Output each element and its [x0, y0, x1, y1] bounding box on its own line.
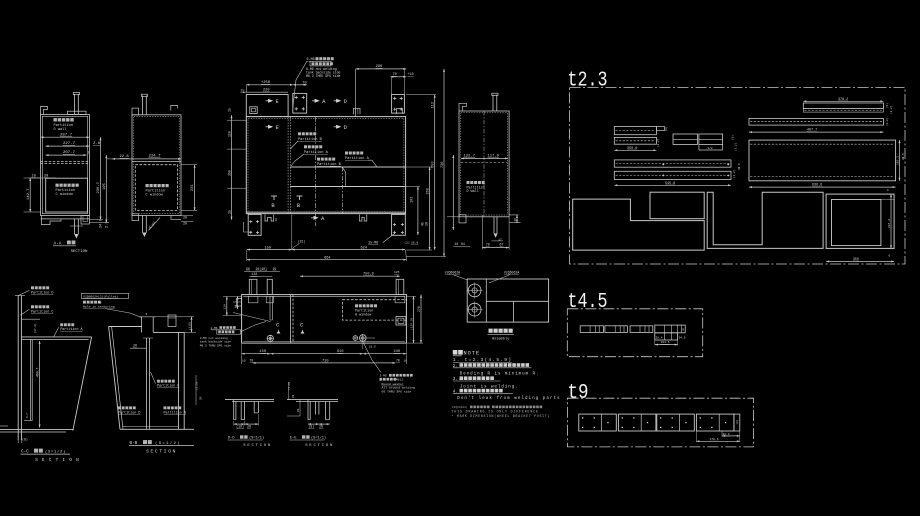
- svg-text:34.5: 34.5: [679, 336, 686, 339]
- svg-text:6-M6: 6-M6: [307, 58, 315, 62]
- svg-text:THIS DRAWING IS ONLY DIFFERENC: THIS DRAWING IS ONLY DIFFERENCE: [452, 410, 539, 414]
- svg-text:67: 67: [500, 243, 504, 247]
- svg-text:70: 70: [250, 358, 254, 362]
- svg-text:(6): (6): [664, 126, 668, 131]
- svg-text:185.5: 185.5: [896, 156, 899, 165]
- svg-text:(9): (9): [735, 419, 739, 424]
- svg-text:2-M6: 2-M6: [211, 327, 218, 330]
- svg-text:SECTION: SECTION: [35, 458, 83, 463]
- svg-text:(2): (2): [404, 241, 410, 245]
- svg-text:96: 96: [246, 267, 250, 271]
- svg-text:Bending R is minimum R.: Bending R is minimum R.: [460, 372, 540, 377]
- svg-text:84: 84: [461, 242, 465, 246]
- svg-text:70: 70: [486, 243, 490, 247]
- svg-text:122.7: 122.7: [464, 155, 475, 159]
- svg-text:29: 29: [273, 267, 277, 271]
- svg-text:Partition D: Partition D: [118, 410, 140, 415]
- svg-text:15: 15: [240, 90, 244, 94]
- svg-text:(3.2): (3.2): [656, 138, 660, 147]
- svg-text:Partition A: Partition A: [345, 156, 370, 161]
- svg-text:38.4: 38.4: [656, 336, 663, 339]
- svg-text:149.7: 149.7: [27, 189, 31, 200]
- svg-text:D wall: D wall: [54, 127, 67, 132]
- svg-text:1. t=2.3(4.5.9): 1. t=2.3(4.5.9): [453, 357, 512, 363]
- svg-text:M6.3 THRU SPG side: M6.3 THRU SPG side: [200, 343, 231, 347]
- svg-text:(110): (110): [187, 321, 191, 330]
- svg-text:1/2: 1/2: [708, 146, 713, 150]
- svg-text:15: 15: [227, 210, 231, 214]
- svg-text:360: 360: [227, 170, 231, 176]
- svg-text:20: 20: [319, 425, 323, 429]
- svg-text:231: 231: [191, 183, 195, 191]
- svg-text:650: 650: [432, 162, 436, 168]
- svg-text:664: 664: [324, 257, 330, 261]
- svg-text:6: 6: [146, 313, 148, 316]
- svg-text:230.7: 230.7: [97, 182, 101, 193]
- svg-text:Assembly: Assembly: [492, 337, 510, 342]
- svg-text:224.7: 224.7: [149, 154, 162, 158]
- svg-text:60 THRU SPG side: 60 THRU SPG side: [382, 389, 412, 393]
- svg-text:110: 110: [224, 304, 227, 310]
- svg-text:(2.3): (2.3): [195, 381, 199, 390]
- svg-text:(81): (81): [298, 239, 306, 243]
- svg-text:110: 110: [227, 131, 231, 137]
- svg-text:6.7: 6.7: [26, 413, 29, 418]
- svg-text:Partition B: Partition B: [298, 137, 323, 142]
- svg-text:Partition A: Partition A: [60, 327, 83, 332]
- svg-text:20: 20: [183, 222, 187, 226]
- svg-text:2.6: 2.6: [93, 142, 101, 146]
- svg-text:(197.9): (197.9): [409, 317, 413, 330]
- svg-text:270: 270: [417, 306, 421, 312]
- svg-text:A window: A window: [355, 312, 371, 317]
- svg-text:70: 70: [396, 358, 400, 362]
- svg-text:Partition A: Partition A: [164, 410, 187, 415]
- svg-text:(3.2): (3.2): [732, 169, 736, 178]
- svg-text:170.6: 170.6: [710, 438, 719, 441]
- svg-text:tank backside side: tank backside side: [200, 340, 231, 344]
- svg-text:(8): (8): [22, 438, 28, 442]
- svg-text:20(40): 20(40): [256, 267, 268, 271]
- svg-text:20: 20: [200, 396, 203, 400]
- svg-text:20: 20: [247, 425, 251, 429]
- svg-text:SECTION: SECTION: [243, 444, 272, 448]
- svg-text:Partition A: Partition A: [304, 150, 329, 155]
- svg-text:19: 19: [425, 222, 429, 226]
- svg-text:350: 350: [853, 257, 859, 261]
- svg-text:V2Q6062A: V2Q6062A: [504, 271, 519, 275]
- svg-text:(3.2): (3.2): [885, 117, 889, 126]
- svg-text:736: 736: [441, 162, 445, 168]
- svg-text:(8): (8): [309, 424, 315, 428]
- svg-text:D wall: D wall: [467, 189, 479, 194]
- svg-text:2: 2: [88, 151, 90, 155]
- svg-text:(10): (10): [236, 424, 244, 428]
- svg-text:C window: C window: [56, 192, 74, 197]
- svg-text:38.5: 38.5: [738, 163, 741, 170]
- svg-text:SECTION: SECTION: [146, 449, 177, 454]
- svg-text:M6.3 THRU SPG side: M6.3 THRU SPG side: [306, 74, 341, 78]
- svg-text:84: 84: [235, 304, 238, 308]
- svg-text:(2.3): (2.3): [287, 381, 291, 390]
- svg-text:194.5: 194.5: [661, 341, 670, 344]
- svg-text:* MARK DIMENSION(WHEEL BRACKET: * MARK DIMENSION(WHEEL BRACKET POSIT): [452, 414, 551, 418]
- svg-text:191: 191: [411, 197, 415, 203]
- svg-text:112: 112: [432, 102, 436, 108]
- svg-text:287.7: 287.7: [60, 133, 73, 137]
- svg-text:117.9: 117.9: [488, 155, 500, 159]
- svg-text:207.7: 207.7: [63, 151, 76, 155]
- svg-text:Partition D: Partition D: [31, 290, 53, 295]
- svg-text:R: R: [682, 329, 684, 332]
- svg-text:SECTION: SECTION: [71, 250, 88, 254]
- svg-text:460.7: 460.7: [35, 367, 39, 377]
- svg-text:2.3: 2.3: [106, 222, 110, 228]
- svg-text:38.5: 38.5: [902, 153, 905, 160]
- svg-text:20: 20: [297, 408, 300, 412]
- svg-text:15: 15: [227, 108, 231, 112]
- svg-text:21.5: 21.5: [369, 346, 376, 349]
- svg-text:24.7: 24.7: [100, 219, 104, 228]
- svg-text:SECTION: SECTION: [305, 444, 334, 448]
- svg-text:10: 10: [455, 242, 459, 246]
- svg-text:Hole in sensoring: Hole in sensoring: [83, 305, 115, 309]
- svg-text:V2Q6062A(2)(Fillet): V2Q6062A(2)(Fillet): [83, 294, 118, 298]
- svg-text:(6): (6): [731, 135, 735, 140]
- svg-text:20: 20: [292, 394, 295, 398]
- svg-text:150: 150: [265, 247, 271, 251]
- svg-text:): ): [488, 405, 490, 409]
- svg-text:Partition C: Partition C: [157, 384, 179, 389]
- svg-text:Don't leak from welding parts: Don't leak from welding parts: [457, 396, 560, 401]
- svg-text:260: 260: [426, 188, 430, 194]
- svg-text:3-M6 nut welding: 3-M6 nut welding: [200, 336, 228, 340]
- svg-text:C window: C window: [146, 192, 164, 197]
- svg-text:(47.3): (47.3): [33, 323, 37, 333]
- svg-text:227.7: 227.7: [63, 142, 76, 146]
- svg-text:t2.3: t2.3: [568, 70, 608, 93]
- svg-text:V2Q6062A: V2Q6062A: [445, 271, 460, 275]
- svg-text:(3.2): (3.2): [734, 143, 738, 151]
- svg-text:624: 624: [361, 247, 367, 251]
- svg-text:16.6: 16.6: [411, 242, 418, 245]
- svg-text:20: 20: [275, 218, 278, 222]
- svg-text:45: 45: [514, 218, 517, 222]
- svg-text:2-M6: 2-M6: [380, 375, 387, 378]
- svg-text:105: 105: [103, 182, 107, 190]
- svg-text:NOTE: NOTE: [464, 351, 480, 357]
- svg-text:t4.5: t4.5: [568, 291, 608, 314]
- svg-text:237.2: 237.2: [888, 219, 891, 228]
- svg-text:125: 125: [394, 271, 400, 274]
- svg-text:(3.2): (3.2): [889, 105, 893, 114]
- svg-text:+10: +10: [408, 73, 414, 77]
- svg-text:Partition C: Partition C: [31, 309, 53, 314]
- svg-text:15-M6: 15-M6: [368, 241, 378, 245]
- svg-text:138: 138: [252, 272, 258, 276]
- svg-text:20: 20: [183, 216, 187, 220]
- svg-text:V2Q6062A(: V2Q6062A(: [452, 405, 468, 409]
- svg-text:t9: t9: [568, 382, 589, 405]
- svg-text:10: 10: [404, 359, 408, 362]
- svg-text:10: 10: [242, 359, 246, 362]
- svg-text:(6): (6): [885, 103, 889, 108]
